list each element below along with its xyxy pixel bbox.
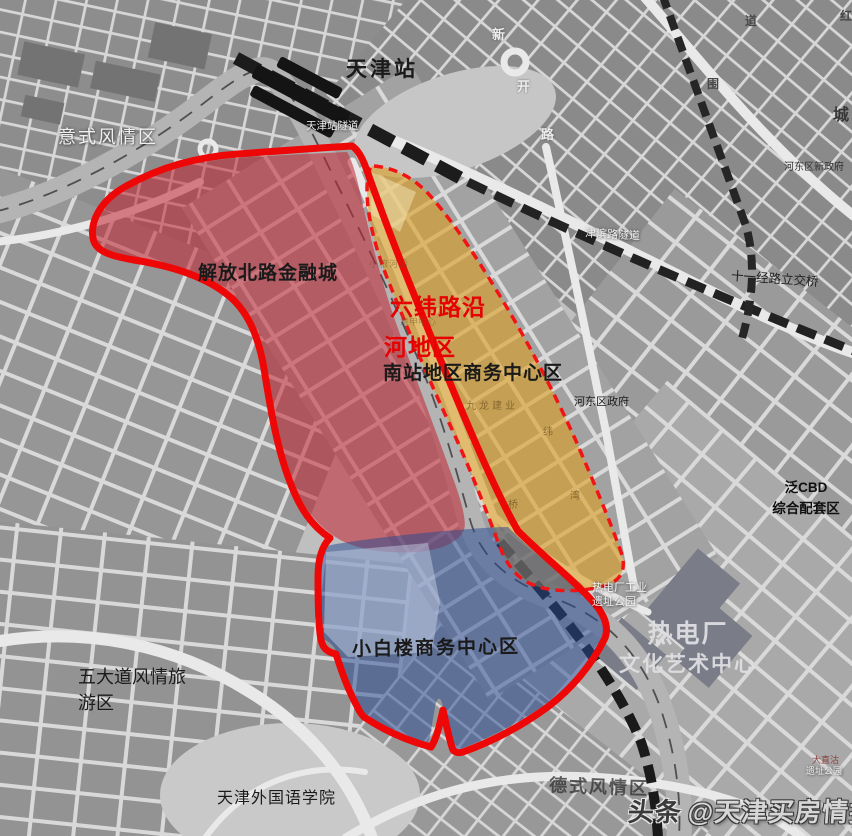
label-power-plant-heritage-park: 热电厂工业 遗址公园: [592, 581, 647, 609]
roadchar-wan: 湾: [570, 491, 580, 503]
roadchar-qiao: 桥: [508, 500, 518, 512]
roadchar-xin: 新: [492, 28, 505, 43]
label-yijia-center: 意甲中心: [400, 317, 436, 327]
label-tianjin-station: 天津站: [346, 58, 418, 82]
label-station-tunnel: 天津站隧道: [306, 120, 359, 132]
label-italian-style-area: 意式风情区: [58, 127, 158, 148]
watermark-badge: 头条: [627, 797, 683, 827]
roadchar-dao: 道: [745, 15, 757, 29]
label-jiefang-north-financial-city: 解放北路金融城: [198, 263, 338, 285]
label-fan-cbd: 泛CBD 综合配套区: [763, 477, 849, 519]
label-nanzhan-business-center: 南站地区商务中心区: [383, 363, 563, 385]
label-power-plant-heritage-park-line2: 遗址公园: [592, 595, 647, 609]
label-wudadao-tourism-area: 五大道风情旅 游区: [78, 664, 186, 716]
planning-map: 天津站 天津站隧道 意式风情区 解放北路金融城 小粮河沿 六纬路沿 河地区 意甲…: [0, 0, 852, 836]
label-foreign-studies-university: 天津外国语学院: [217, 790, 336, 808]
label-xiaoliang-hevan: 小粮河沿: [369, 259, 409, 269]
label-power-plant-art-center-line2: 文化艺术中心: [608, 653, 768, 677]
label-dazhigu: 大直沽: [812, 755, 839, 765]
label-jiulong-jianye: 九龙建业: [466, 401, 518, 413]
label-fan-cbd-line1: 泛CBD: [763, 477, 849, 498]
watermark: 头条@天津买房情报: [627, 792, 852, 829]
label-hedong-new-gov: 河东区新政府: [784, 162, 844, 174]
label-power-plant-heritage-park-line1: 热电厂工业: [592, 581, 647, 595]
label-power-plant-art-center: 热电厂 文化艺术中心: [608, 620, 768, 677]
roadchar-wei-enclosed: 围: [707, 78, 719, 92]
label-wudadao-line2: 游区: [78, 690, 186, 716]
roadchar-cheng: 城: [833, 107, 849, 125]
roadchar-wei: 纬: [543, 427, 553, 439]
roadchar-lu: 路: [541, 128, 554, 143]
watermark-handle: @天津买房情报: [687, 797, 852, 827]
label-fan-cbd-line2: 综合配套区: [763, 498, 849, 519]
roadchar-hong: 红: [840, 10, 852, 24]
label-wudadao-line1: 五大道风情旅: [78, 664, 186, 690]
label-liuwei-riverside-line2: 河地区: [384, 334, 456, 360]
label-hedong-district-gov: 河东区政府: [574, 396, 629, 409]
roadchar-kai: 开: [517, 80, 530, 95]
label-dazhigu-park: 遗址公园: [806, 766, 842, 776]
label-xiaobailou-business-center: 小白楼商务中心区: [352, 637, 520, 662]
label-power-plant-art-center-line1: 热电厂: [608, 620, 768, 649]
